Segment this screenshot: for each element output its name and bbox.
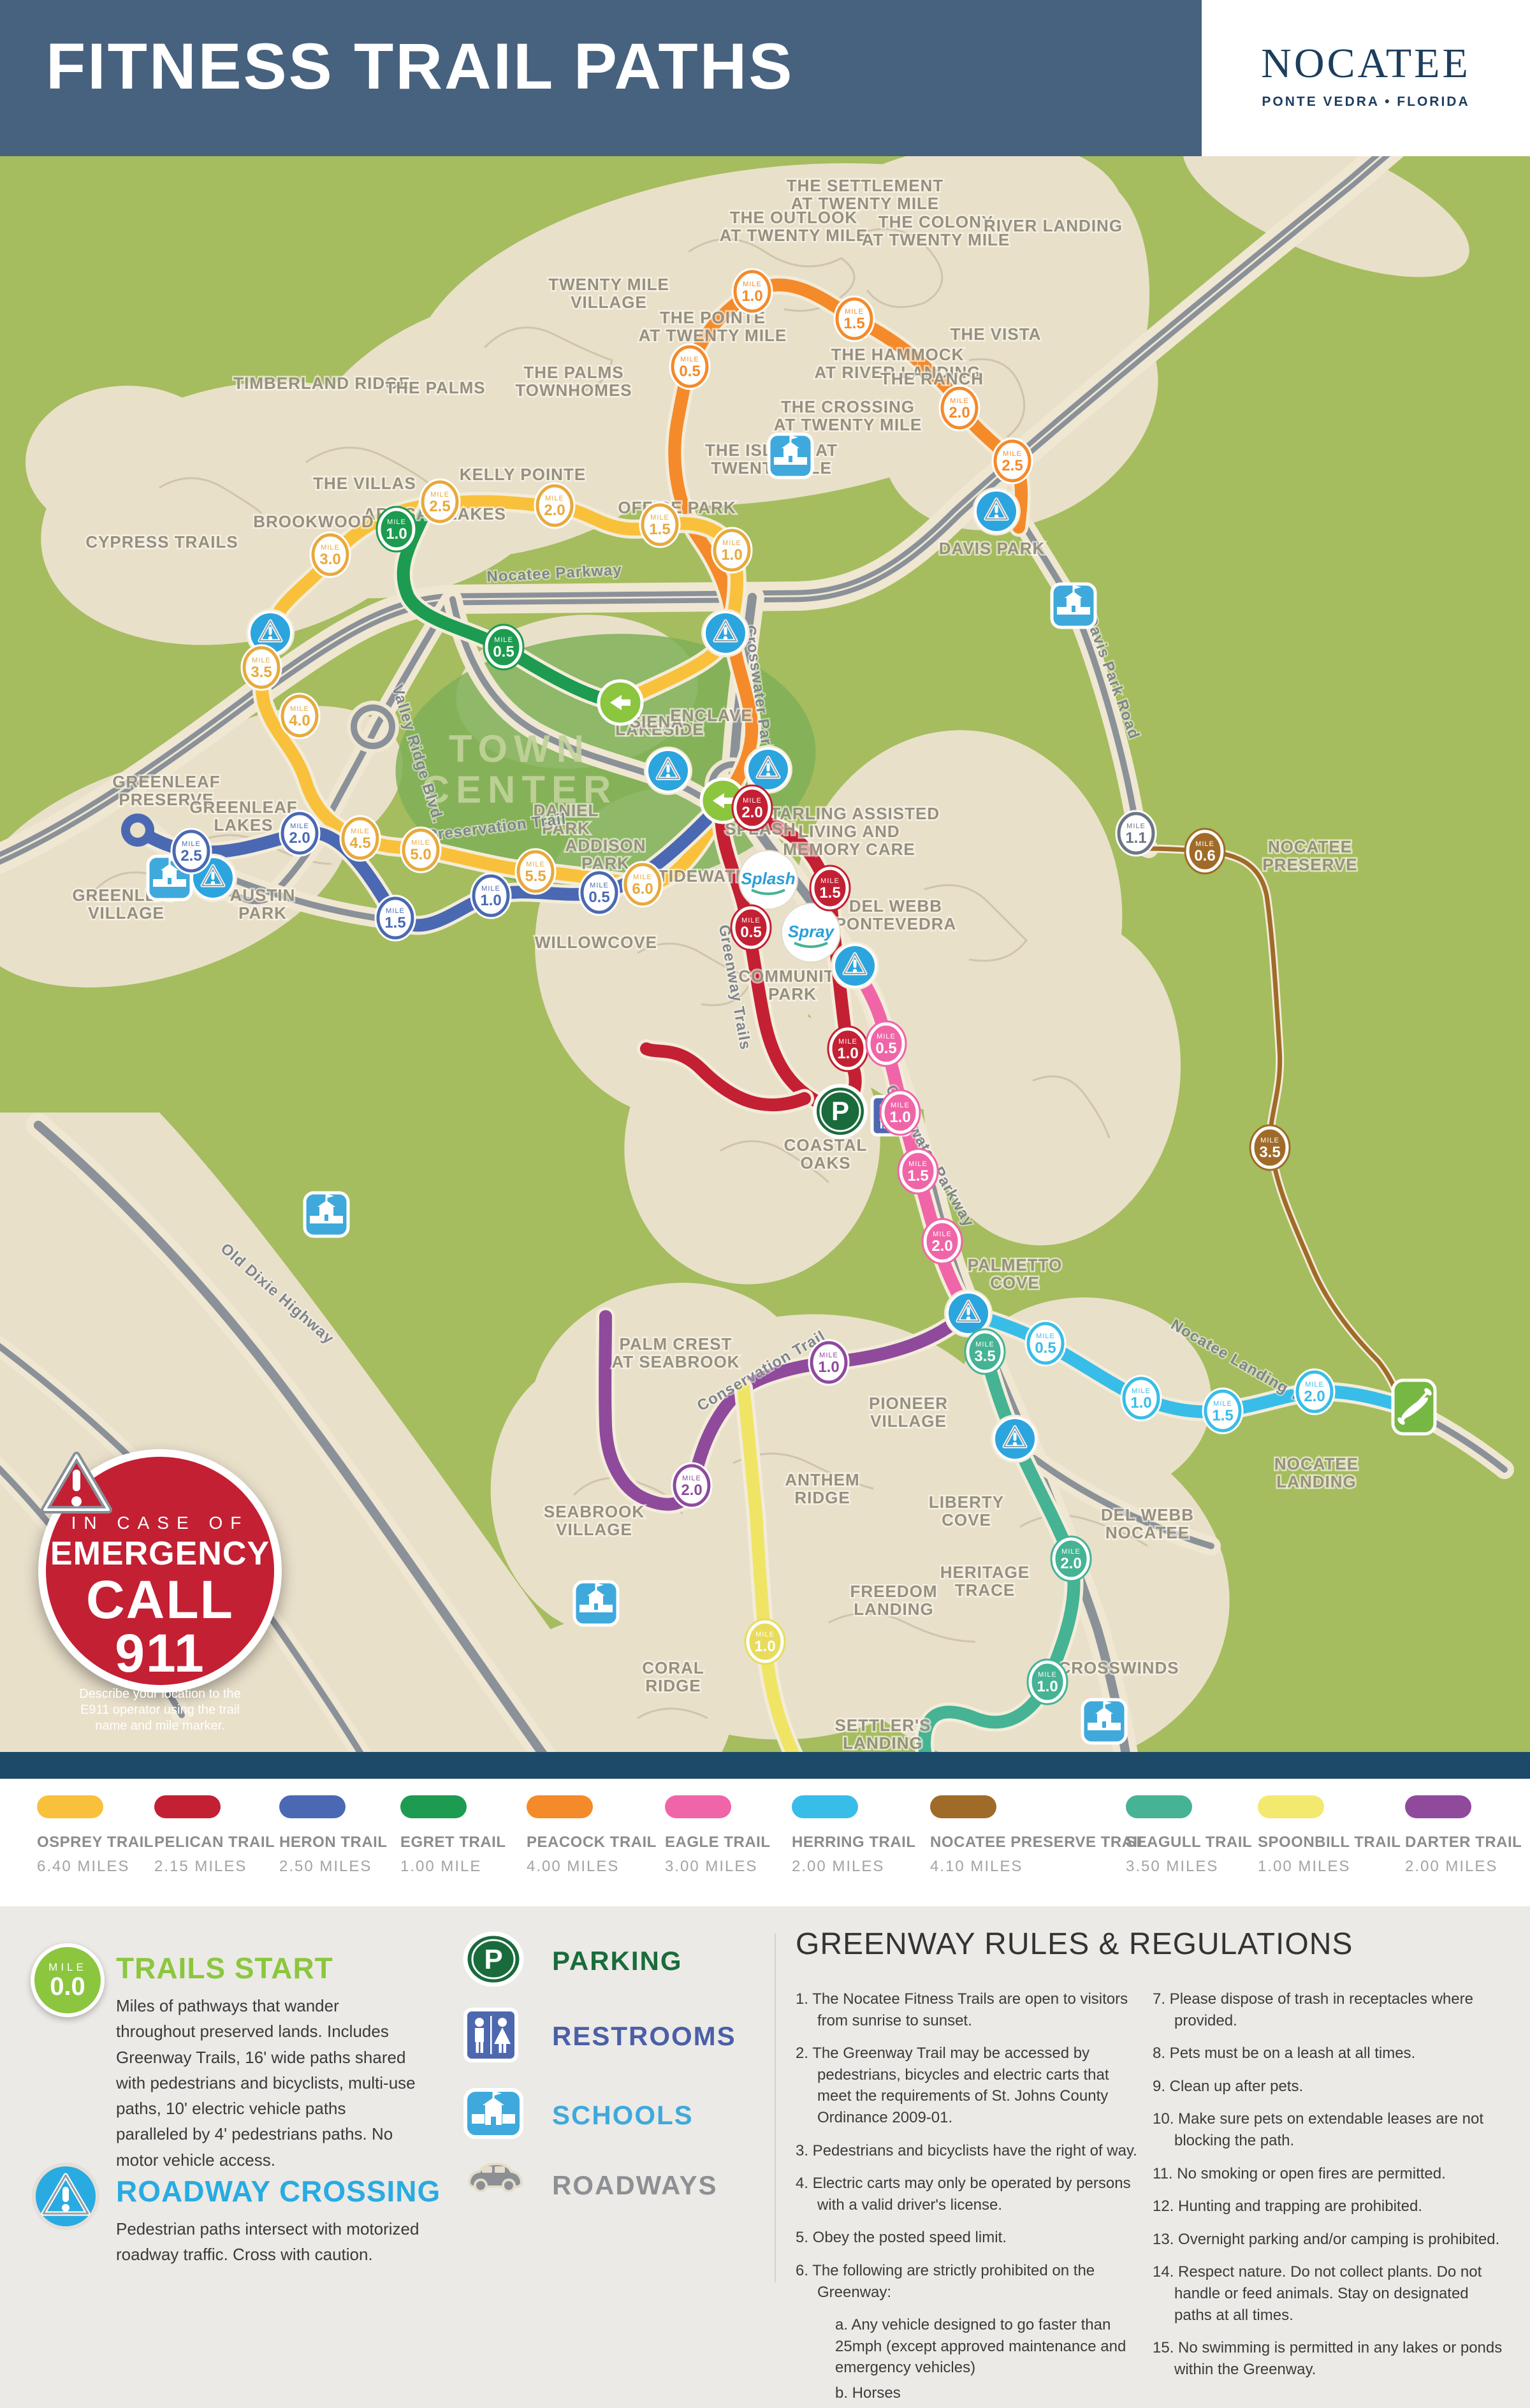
legend-trail-name: HERRING TRAIL <box>792 1834 916 1851</box>
roadway-crossing-body: Pedestrian paths intersect with motorize… <box>116 2216 421 2268</box>
restrooms-icon <box>463 2007 519 2066</box>
legend-swatch <box>400 1795 467 1818</box>
legend-swatch <box>154 1795 221 1818</box>
legend-swatch <box>1405 1795 1471 1818</box>
mile-marker-seagull-1.0: MILE1.0 <box>1028 1660 1067 1704</box>
school-icon[interactable] <box>1052 584 1095 627</box>
community-label: THE RANCH <box>880 369 984 388</box>
community-label: WILLOWCOVE <box>535 933 657 952</box>
community-label: PALM CRESTAT SEABROOK <box>611 1334 739 1371</box>
school-icon[interactable] <box>305 1193 348 1236</box>
svg-text:1.5: 1.5 <box>843 315 864 332</box>
svg-text:1.0: 1.0 <box>386 525 407 543</box>
mile-marker-heron-1.5: MILE1.5 <box>375 896 415 940</box>
emergency-title: EMERGENCY <box>46 1535 274 1573</box>
mile-marker-osprey-4.0: MILE4.0 <box>280 694 319 738</box>
community-label: SETTLER'SLANDING <box>835 1716 931 1753</box>
roadway-crossing-icon <box>31 2161 101 2231</box>
svg-text:1.0: 1.0 <box>818 1359 839 1376</box>
mile-marker-egret-1.0: MILE1.0 <box>377 507 416 551</box>
legend-swatch <box>930 1795 996 1818</box>
community-label: KELLY POINTE <box>460 465 586 484</box>
rule-item: 3. Pedestrians and bicyclists have the r… <box>796 2140 1140 2162</box>
parking-icon: P <box>463 1932 524 1990</box>
legend-swatch <box>279 1795 346 1818</box>
svg-text:1.0: 1.0 <box>754 1638 775 1655</box>
mile-marker-preserve-3.5: MILE3.5 <box>1250 1125 1290 1170</box>
mile-marker-osprey-1.0: MILE1.0 <box>712 528 752 573</box>
svg-text:1.0: 1.0 <box>837 1045 858 1062</box>
landmass <box>25 386 229 539</box>
rule-sub-item: b. Horses <box>835 2382 1140 2404</box>
svg-text:0.5: 0.5 <box>740 924 761 941</box>
school-icon[interactable] <box>1082 1700 1126 1743</box>
mile-marker-spoonbill-1.0: MILE1.0 <box>745 1619 785 1664</box>
rules-column-1: 1. The Nocatee Fitness Trails are open t… <box>796 1988 1140 2408</box>
mile-marker-osprey-2.5: MILE2.5 <box>420 479 460 524</box>
emergency-badge: IN CASE OF EMERGENCY CALL 911 Describe y… <box>38 1449 282 1693</box>
rules-title: GREENWAY RULES & REGULATIONS <box>796 1927 1510 1962</box>
rule-item: 13. Overnight parking and/or camping is … <box>1153 2229 1510 2251</box>
legend-trail-name: EGRET TRAIL <box>400 1834 506 1851</box>
community-label: RIVER LANDING <box>984 216 1123 235</box>
svg-text:2.0: 2.0 <box>289 829 310 847</box>
svg-text:2.0: 2.0 <box>1060 1555 1081 1572</box>
mile-marker-peacock-0.5: MILE0.5 <box>670 344 710 389</box>
legend-trail-name: DARTER TRAIL <box>1405 1834 1522 1851</box>
svg-text:2.0: 2.0 <box>949 404 970 421</box>
svg-text:6.0: 6.0 <box>632 880 653 898</box>
mile-marker-pelican-1.0: MILE1.0 <box>828 1026 868 1071</box>
svg-text:3.0: 3.0 <box>319 551 340 568</box>
mile-marker-heron-2.5: MILE2.5 <box>171 829 211 873</box>
brand-subtitle: PONTE VEDRA • FLORIDA <box>1202 94 1530 110</box>
community-label: THE PALMS <box>385 378 485 397</box>
brand-logo: NOCATEE <box>1202 40 1530 88</box>
rule-item: 10. Make sure pets on extendable leases … <box>1153 2108 1510 2151</box>
mile-marker-seagull-3.5: MILE3.5 <box>965 1329 1005 1374</box>
svg-text:1.0: 1.0 <box>1037 1678 1058 1695</box>
mile-marker-heron-1.0: MILE1.0 <box>471 873 511 918</box>
trail-map[interactable]: THE SETTLEMENTAT TWENTY MILETHE OUTLOOKA… <box>0 156 1530 1779</box>
svg-text:Splash: Splash <box>741 869 795 888</box>
legend-trail-name: EAGLE TRAIL <box>665 1834 771 1851</box>
community-label: BROOKWOOD <box>253 512 374 531</box>
community-label: THE PALMSTOWNHOMES <box>515 363 632 400</box>
community-label: CYPRESS TRAILS <box>85 532 238 551</box>
legend-swatch <box>1258 1795 1324 1818</box>
mile-marker-osprey-5.5: MILE5.5 <box>516 849 555 894</box>
restrooms-label: RESTROOMS <box>552 2021 736 2052</box>
legend-trail-name: HERON TRAIL <box>279 1834 388 1851</box>
svg-text:3.5: 3.5 <box>1259 1144 1280 1161</box>
mile-marker-eagle-0.5: MILE0.5 <box>866 1021 906 1066</box>
svg-text:3.5: 3.5 <box>974 1348 995 1365</box>
community-label: FREEDOMLANDING <box>850 1582 938 1619</box>
mile-marker-roadway-1.1: MILE1.1 <box>1116 811 1156 856</box>
svg-text:2.0: 2.0 <box>741 804 762 821</box>
community-label: THE CROSSINGAT TWENTY MILE <box>774 397 922 434</box>
community-label: ENCLAVE <box>670 706 752 725</box>
svg-text:5.0: 5.0 <box>410 846 431 863</box>
svg-text:1.5: 1.5 <box>907 1167 928 1185</box>
legend-swatch <box>792 1795 858 1818</box>
legend-trail-miles: 4.00 MILES <box>527 1858 619 1876</box>
svg-text:0.5: 0.5 <box>493 643 514 660</box>
school-icon[interactable] <box>574 1582 618 1625</box>
mile-marker-heron-0.5: MILE0.5 <box>579 870 619 915</box>
terminus-icon[interactable] <box>121 814 154 847</box>
community-label: NOCATEELANDING <box>1274 1454 1359 1491</box>
mile-marker-eagle-1.0: MILE1.0 <box>880 1090 920 1135</box>
mile-marker-darter-1.0: MILE1.0 <box>809 1340 849 1385</box>
mile-0-badge: MILE 0.0 <box>31 1943 105 2017</box>
svg-text:1.5: 1.5 <box>649 521 670 538</box>
map-bottom-band <box>0 1752 1530 1779</box>
schools-icon <box>463 2086 524 2144</box>
legend-trail-miles: 2.50 MILES <box>279 1858 372 1876</box>
rule-item: 9. Clean up after pets. <box>1153 2076 1510 2098</box>
mile-marker-herring-1.0: MILE1.0 <box>1121 1376 1161 1420</box>
svg-text:0.6: 0.6 <box>1194 847 1215 865</box>
community-label: TIMBERLAND RIDGE <box>233 374 410 393</box>
mile-marker-peacock-2.0: MILE2.0 <box>940 386 979 430</box>
svg-text:P: P <box>831 1096 849 1126</box>
rules-column-2: 7. Please dispose of trash in receptacle… <box>1153 1988 1510 2408</box>
rule-item: 7. Please dispose of trash in receptacle… <box>1153 1988 1510 2031</box>
rule-item: 4. Electric carts may only be operated b… <box>796 2173 1140 2215</box>
mile-marker-osprey-3.0: MILE3.0 <box>310 532 350 577</box>
legend-trail-name: SPOONBILL TRAIL <box>1258 1834 1401 1851</box>
svg-text:2.5: 2.5 <box>1002 457 1023 474</box>
mile-marker-pelican-2.0: MILE2.0 <box>732 785 772 830</box>
legend-trail-miles: 1.00 MILE <box>400 1858 481 1876</box>
facility-restrooms: RESTROOMS <box>463 2007 762 2066</box>
crossing-icon[interactable] <box>644 747 692 795</box>
svg-text:1.0: 1.0 <box>480 892 501 909</box>
svg-text:2.5: 2.5 <box>180 847 201 865</box>
mile-marker-pelican-0.5: MILE0.5 <box>731 905 771 950</box>
mile-marker-peacock-1.0: MILE1.0 <box>732 269 772 314</box>
schools-label: SCHOOLS <box>552 2100 694 2131</box>
legend-trail-miles: 6.40 MILES <box>37 1858 129 1876</box>
rule-item: 11. No smoking or open fires are permitt… <box>1153 2163 1510 2185</box>
mile-marker-herring-2.0: MILE2.0 <box>1295 1369 1334 1414</box>
community-label: ANTHEMRIDGE <box>785 1470 859 1507</box>
mile-marker-egret-0.5: MILE0.5 <box>484 625 523 669</box>
legend-trail-name: PEACOCK TRAIL <box>527 1834 657 1851</box>
logo-spray: Spray <box>782 903 840 962</box>
svg-text:0.5: 0.5 <box>875 1040 896 1057</box>
mile-marker-osprey-5.0: MILE5.0 <box>401 828 441 872</box>
trails-start-body: Miles of pathways that wander throughout… <box>116 1993 421 2173</box>
svg-text:1.1: 1.1 <box>1125 829 1146 847</box>
legend-trail-miles: 3.50 MILES <box>1126 1858 1218 1876</box>
mile-marker-herring-1.5: MILE1.5 <box>1203 1389 1242 1433</box>
svg-text:0.5: 0.5 <box>588 889 609 906</box>
legend-trail-miles: 4.10 MILES <box>930 1858 1023 1876</box>
logo-splash: Splash <box>739 850 798 909</box>
roadways-icon <box>463 2156 527 2198</box>
rule-item: 14. Respect nature. Do not collect plant… <box>1153 2261 1510 2326</box>
mile-badge-label: MILE <box>34 1961 101 1974</box>
brand-box: NOCATEE PONTE VEDRA • FLORIDA <box>1202 0 1530 156</box>
svg-text:1.0: 1.0 <box>1130 1394 1151 1412</box>
rule-sub-item: a. Any vehicle designed to go faster tha… <box>835 2314 1140 2379</box>
svg-text:2.0: 2.0 <box>681 1482 702 1499</box>
legend-trail-miles: 2.00 MILES <box>792 1858 884 1876</box>
community-label: THE OUTLOOKAT TWENTY MILE <box>720 208 868 245</box>
community-label: DEL WEBBNOCATEE <box>1101 1505 1194 1542</box>
community-label: THE VILLAS <box>313 474 416 493</box>
header-bar: FITNESS TRAIL PATHS NOCATEE PONTE VEDRA … <box>0 0 1530 156</box>
rules-section: GREENWAY RULES & REGULATIONS 1. The Noca… <box>796 1927 1510 2408</box>
svg-text:0.5: 0.5 <box>1035 1339 1056 1357</box>
mile-marker-osprey-1.5: MILE1.5 <box>640 502 680 547</box>
legend-swatch <box>665 1795 731 1818</box>
svg-text:4.0: 4.0 <box>289 712 310 729</box>
rule-item: 5. Obey the posted speed limit. <box>796 2227 1140 2249</box>
legend-trail-name: SEAGULL TRAIL <box>1126 1834 1252 1851</box>
svg-text:1.5: 1.5 <box>384 914 405 931</box>
community-label: SEABROOKVILLAGE <box>544 1502 645 1539</box>
svg-text:1.5: 1.5 <box>819 884 840 901</box>
mile-marker-seagull-2.0: MILE2.0 <box>1051 1536 1091 1581</box>
legend-trail-miles: 3.00 MILES <box>665 1858 757 1876</box>
facility-roadways: ROADWAYS <box>463 2156 762 2215</box>
rule-item: 12. Hunting and trapping are prohibited. <box>1153 2196 1510 2217</box>
svg-text:P: P <box>484 1944 502 1975</box>
legend-trail-miles: 2.15 MILES <box>154 1858 247 1876</box>
town-center-label: TOWNCENTER <box>422 727 618 811</box>
community-label: DEL WEBBPONTEVEDRA <box>835 896 957 933</box>
legend-swatch <box>37 1795 103 1818</box>
mile-marker-eagle-2.0: MILE2.0 <box>922 1219 962 1264</box>
svg-text:1.0: 1.0 <box>889 1109 910 1126</box>
community-label: CORALRIDGE <box>642 1658 704 1695</box>
rule-item: 2. The Greenway Trail may be accessed by… <box>796 2043 1140 2128</box>
info-footer: MILE 0.0 TRAILS START Miles of pathways … <box>0 1906 1530 2310</box>
mile-marker-osprey-2.0: MILE2.0 <box>535 483 574 528</box>
svg-text:2.0: 2.0 <box>544 502 565 519</box>
legend-swatch <box>1126 1795 1192 1818</box>
mile-marker-eagle-1.5: MILE1.5 <box>898 1149 938 1193</box>
facility-schools: SCHOOLS <box>463 2086 762 2145</box>
mile-marker-peacock-2.5: MILE2.5 <box>993 439 1032 483</box>
svg-text:2.0: 2.0 <box>1304 1388 1325 1405</box>
svg-text:1.5: 1.5 <box>1212 1407 1233 1424</box>
legend-trail-name: PELICAN TRAIL <box>154 1834 275 1851</box>
svg-text:Spray: Spray <box>788 922 835 941</box>
community-label: THE POINTEAT TWENTY MILE <box>639 308 787 345</box>
svg-text:5.5: 5.5 <box>525 868 546 885</box>
column-divider <box>775 1933 776 2282</box>
legend-swatch <box>527 1795 593 1818</box>
legend-trail-miles: 2.00 MILES <box>1405 1858 1497 1876</box>
community-label: AUSTINPARK <box>230 886 296 923</box>
page-title: FITNESS TRAIL PATHS <box>46 29 794 104</box>
mile-marker-osprey-4.5: MILE4.5 <box>340 816 380 861</box>
mile-marker-pelican-1.5: MILE1.5 <box>810 866 850 910</box>
school-icon[interactable] <box>769 434 812 478</box>
warning-triangle-icon <box>38 1449 115 1519</box>
trails-start-heading: TRAILS START <box>116 1951 333 1985</box>
emergency-note: Describe your location to the E911 opera… <box>74 1686 246 1734</box>
roadway-crossing-heading: ROADWAY CROSSING <box>116 2174 441 2208</box>
community-label: DAVIS PARK <box>939 539 1045 558</box>
rule-item: 15. No swimming is permitted in any lake… <box>1153 2337 1510 2380</box>
legend-trail-name: NOCATEE PRESERVE TRAIL <box>930 1834 1147 1851</box>
mile-badge-value: 0.0 <box>34 1974 101 1999</box>
mile-marker-osprey-3.5: MILE3.5 <box>242 645 281 690</box>
mile-marker-osprey-6.0: MILE6.0 <box>623 862 662 907</box>
legend-trail-miles: 1.00 MILES <box>1258 1858 1350 1876</box>
svg-text:2.5: 2.5 <box>429 498 450 515</box>
parking-icon[interactable]: P <box>815 1086 866 1137</box>
facility-parking: PPARKING <box>463 1932 762 1990</box>
legend-trail-name: OSPREY TRAIL <box>37 1834 154 1851</box>
mile-marker-peacock-1.5: MILE1.5 <box>834 296 874 341</box>
kayak-icon[interactable] <box>1393 1380 1435 1434</box>
svg-text:2.0: 2.0 <box>931 1237 952 1255</box>
mile-marker-darter-2.0: MILE2.0 <box>672 1463 711 1508</box>
community-label: NOCATEEPRESERVE <box>1262 837 1357 874</box>
rule-item: 8. Pets must be on a leash at all times. <box>1153 2043 1510 2064</box>
crossing-icon[interactable] <box>991 1415 1039 1463</box>
community-label: CROSSWINDS <box>1058 1658 1179 1677</box>
parking-label: PARKING <box>552 1946 683 1976</box>
emergency-call-911: CALL 911 <box>46 1573 274 1680</box>
mile-marker-preserve-0.6: MILE0.6 <box>1185 829 1225 873</box>
svg-text:1.0: 1.0 <box>721 546 742 564</box>
mile-marker-heron-2.0: MILE2.0 <box>280 811 319 856</box>
mile-marker-herring-0.5: MILE0.5 <box>1026 1321 1065 1366</box>
crossing-icon[interactable] <box>831 942 879 990</box>
roadways-label: ROADWAYS <box>552 2170 718 2201</box>
svg-text:1.0: 1.0 <box>741 288 762 305</box>
rule-item: 1. The Nocatee Fitness Trails are open t… <box>796 1988 1140 2031</box>
svg-text:4.5: 4.5 <box>349 835 370 852</box>
community-label: PIONEERVILLAGE <box>869 1394 948 1431</box>
trail-legend: OSPREY TRAIL6.40 MILESPELICAN TRAIL2.15 … <box>0 1779 1530 1906</box>
community-label: THE VISTA <box>951 325 1042 344</box>
start-icon[interactable] <box>599 681 642 724</box>
rule-item: 6. The following are strictly prohibited… <box>796 2260 1140 2303</box>
crossing-icon[interactable] <box>972 487 1021 536</box>
svg-text:3.5: 3.5 <box>251 664 272 681</box>
crossing-icon[interactable] <box>701 609 750 657</box>
svg-text:0.5: 0.5 <box>679 363 700 380</box>
